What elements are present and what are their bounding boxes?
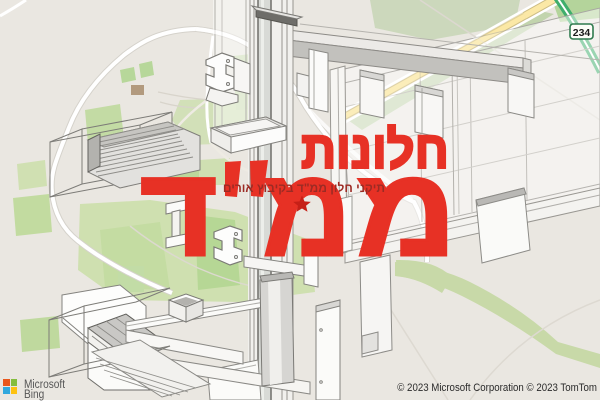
svg-text:234: 234: [573, 27, 591, 39]
